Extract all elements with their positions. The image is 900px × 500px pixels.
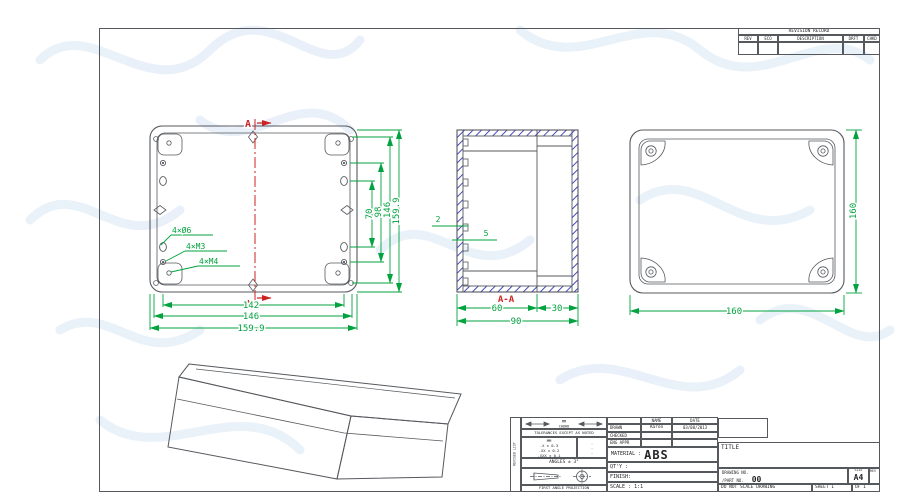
qty-row: QT'Y : xyxy=(607,462,718,472)
revision-empty-chkd xyxy=(864,42,880,55)
units-bottom-label: CHORD xyxy=(559,424,570,428)
revision-col-eco: ECO xyxy=(758,35,778,42)
tolerances-note: TOLERANCES EXCEPT AS NOTED xyxy=(521,429,607,437)
revision-col-chkd: CHKD xyxy=(864,35,880,42)
material-value: ABS xyxy=(644,448,669,462)
of-cell: OF 1 xyxy=(852,484,880,492)
dimension-style-icon: MM CHORD xyxy=(523,418,605,429)
drawn-name: Aaron xyxy=(641,424,672,432)
drawing-no-cell: DRAWING NO. /PART NO. 00 xyxy=(718,468,848,484)
part-no-label: /PART NO. xyxy=(722,478,744,483)
checked-name xyxy=(641,432,672,439)
projection-symbols xyxy=(521,468,607,485)
scale-row: SCALE : 1:1 xyxy=(607,482,718,492)
drawn-date: 03/08/2013 xyxy=(672,424,718,432)
title-cell: TITLE xyxy=(718,442,880,468)
name-header: NAME xyxy=(641,417,672,424)
eng-appr-name xyxy=(641,439,672,447)
finish-row: FINISH: xyxy=(607,472,718,482)
angles-tolerance: ANGLES ± 3° xyxy=(521,458,607,468)
revision-col-drft: DRFT xyxy=(843,35,864,42)
checked-date xyxy=(672,432,718,439)
revision-empty-drft xyxy=(843,42,864,55)
revision-empty-eco xyxy=(758,42,778,55)
rev-cell: REV xyxy=(869,468,880,484)
do-not-scale-cell: DO NOT SCALE DRAWING xyxy=(718,484,812,492)
sheet-cell: SHEET 1 xyxy=(812,484,852,492)
material-label: MATERIAL : xyxy=(611,451,641,458)
revision-empty-description xyxy=(778,42,843,55)
drawn-label: DRAWN xyxy=(607,424,641,432)
title-block-side-strip: REVISED LIST xyxy=(510,417,521,492)
tol-dot-3: · xyxy=(591,452,593,457)
first-angle-projection-icon xyxy=(524,469,604,484)
projection-caption: FIRST ANGLE PROJECTION xyxy=(521,485,607,492)
side-strip-label: REVISED LIST xyxy=(511,418,520,491)
revision-title: REVISION RECORD xyxy=(738,28,880,35)
part-no-value: 00 xyxy=(752,475,762,484)
units-symbol-row: MM CHORD xyxy=(521,417,607,429)
tolerance-values-col2: · · · xyxy=(577,437,607,458)
revision-col-rev: REV xyxy=(738,35,758,42)
tolerance-values: MM .X ± 0.3 .XX ± 0.2 .XXX ± 0.1 xyxy=(521,437,577,458)
checked-label: CHECKED xyxy=(607,432,641,439)
revision-empty-rev xyxy=(738,42,758,55)
date-header: DATE xyxy=(672,417,718,424)
eng-appr-date xyxy=(672,439,718,447)
size-cell: SIZE A4 xyxy=(848,468,869,484)
namecol-blank xyxy=(607,417,641,424)
logo-box xyxy=(718,418,768,438)
material-row: MATERIAL : ABS xyxy=(607,447,718,462)
size-value: A4 xyxy=(854,473,864,482)
units-top-label: MM xyxy=(562,419,566,423)
eng-appr-label: ENG APPR xyxy=(607,439,641,447)
revision-col-description: DESCRIPTION xyxy=(778,35,843,42)
